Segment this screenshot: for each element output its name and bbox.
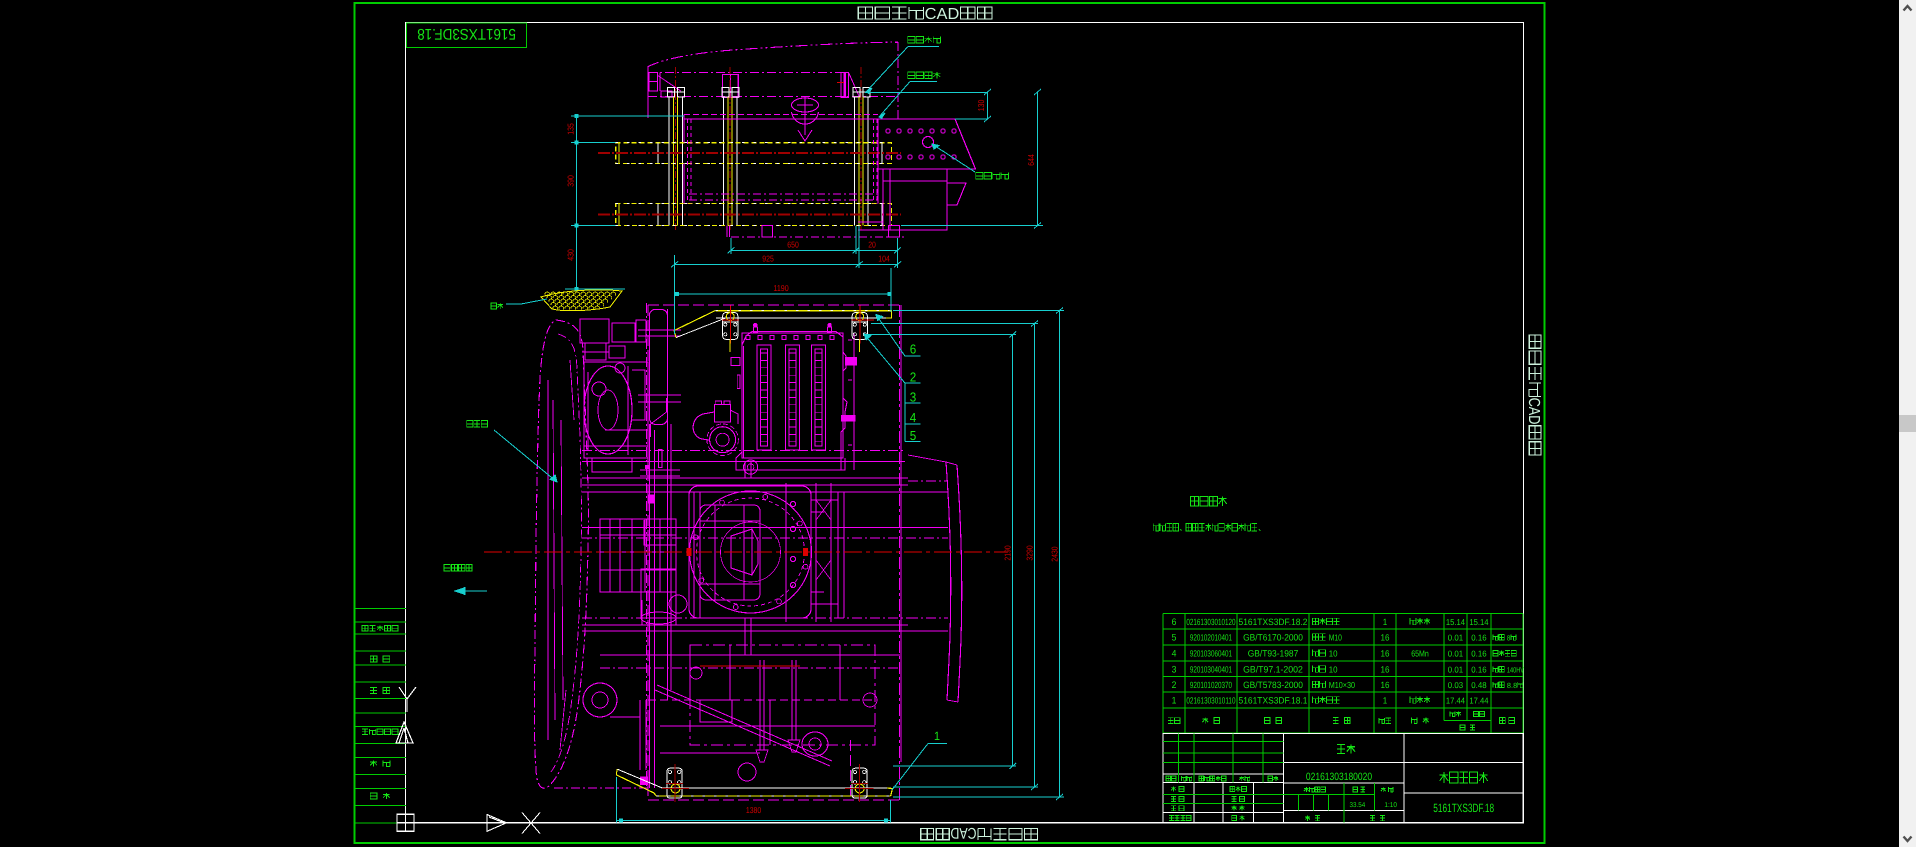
svg-text:650: 650 bbox=[787, 240, 799, 250]
svg-text:6: 6 bbox=[910, 342, 917, 357]
svg-text:GB/T6170-2000: GB/T6170-2000 bbox=[1243, 632, 1303, 642]
svg-text:6: 6 bbox=[1172, 617, 1177, 628]
svg-text:104: 104 bbox=[878, 254, 890, 264]
svg-text:920103040401: 920103040401 bbox=[1190, 664, 1232, 674]
svg-text:CAD: CAD bbox=[951, 824, 977, 841]
svg-text:1: 1 bbox=[1172, 695, 1177, 706]
svg-text:0.48: 0.48 bbox=[1471, 680, 1487, 690]
svg-text:1:10: 1:10 bbox=[1384, 802, 1397, 809]
svg-text:4: 4 bbox=[1172, 648, 1177, 659]
svg-text:GB/T97.1-2002: GB/T97.1-2002 bbox=[1243, 664, 1303, 674]
svg-text:0.03: 0.03 bbox=[1448, 680, 1464, 690]
svg-text:0.16: 0.16 bbox=[1471, 664, 1487, 674]
svg-text:1190: 1190 bbox=[773, 283, 789, 293]
svg-text:GB/T5783-2000: GB/T5783-2000 bbox=[1243, 680, 1303, 690]
svg-text:920101020370: 920101020370 bbox=[1190, 680, 1232, 690]
svg-text:16: 16 bbox=[1381, 680, 1390, 690]
svg-text:10: 10 bbox=[1329, 648, 1338, 658]
svg-text:5161TXS3DF.18: 5161TXS3DF.18 bbox=[417, 25, 516, 42]
svg-text:135: 135 bbox=[566, 123, 576, 135]
svg-text:5161TXS3DF.18.2: 5161TXS3DF.18.2 bbox=[1239, 617, 1308, 627]
svg-text:1: 1 bbox=[1383, 695, 1388, 705]
svg-text:1: 1 bbox=[1383, 617, 1388, 627]
svg-text:M10×30: M10×30 bbox=[1329, 680, 1355, 690]
svg-text:8.8: 8.8 bbox=[1507, 681, 1517, 690]
svg-text:15.14: 15.14 bbox=[1446, 617, 1465, 627]
svg-text:430: 430 bbox=[566, 249, 576, 261]
svg-text:5: 5 bbox=[910, 428, 917, 443]
svg-text:2430: 2430 bbox=[1050, 546, 1060, 562]
svg-text:390: 390 bbox=[566, 175, 576, 187]
svg-text:0.16: 0.16 bbox=[1471, 648, 1487, 658]
svg-text:130: 130 bbox=[976, 99, 986, 111]
svg-text:4: 4 bbox=[910, 410, 917, 425]
svg-text:10: 10 bbox=[1329, 664, 1338, 674]
svg-text:8: 8 bbox=[1507, 633, 1510, 642]
svg-text:GB/T93-1987: GB/T93-1987 bbox=[1248, 648, 1299, 658]
svg-text:5161TXS3DF.18: 5161TXS3DF.18 bbox=[1433, 801, 1494, 815]
svg-text:65Mn: 65Mn bbox=[1411, 648, 1429, 658]
svg-text:2: 2 bbox=[910, 370, 917, 385]
svg-text:1: 1 bbox=[934, 729, 940, 743]
svg-text:3: 3 bbox=[1172, 664, 1177, 675]
svg-text:920103060401: 920103060401 bbox=[1190, 648, 1232, 658]
svg-text:CAD: CAD bbox=[925, 6, 960, 23]
svg-text:0.01: 0.01 bbox=[1448, 664, 1464, 674]
svg-text:0.01: 0.01 bbox=[1448, 632, 1464, 642]
svg-text:02161303010120: 02161303010120 bbox=[1186, 617, 1235, 627]
svg-text:644: 644 bbox=[1026, 154, 1036, 166]
svg-text:17.44: 17.44 bbox=[1446, 695, 1465, 705]
svg-text:925: 925 bbox=[762, 254, 774, 264]
svg-text:17.44: 17.44 bbox=[1469, 695, 1488, 705]
svg-text:3: 3 bbox=[910, 390, 917, 405]
svg-text:0.16: 0.16 bbox=[1471, 632, 1487, 642]
svg-text:5161TXS3DF.18.1: 5161TXS3DF.18.1 bbox=[1239, 695, 1308, 705]
svg-text:0.01: 0.01 bbox=[1448, 648, 1464, 658]
svg-text:920102010401: 920102010401 bbox=[1190, 632, 1232, 642]
svg-text:M10: M10 bbox=[1329, 632, 1342, 642]
svg-text:2: 2 bbox=[1172, 680, 1177, 691]
svg-text:1380: 1380 bbox=[746, 805, 762, 815]
svg-text:16: 16 bbox=[1381, 664, 1390, 674]
svg-text:2190: 2190 bbox=[1003, 545, 1013, 561]
svg-text:16: 16 bbox=[1381, 648, 1390, 658]
svg-text:33.54: 33.54 bbox=[1350, 802, 1366, 809]
svg-text:02161303180020: 02161303180020 bbox=[1306, 771, 1372, 783]
svg-text:20: 20 bbox=[868, 240, 876, 250]
svg-text:5: 5 bbox=[1172, 632, 1177, 643]
svg-text:15.14: 15.14 bbox=[1469, 617, 1488, 627]
svg-text:CAD: CAD bbox=[1525, 398, 1542, 425]
svg-text:140HV: 140HV bbox=[1507, 665, 1525, 674]
svg-text:3290: 3290 bbox=[1025, 545, 1035, 561]
svg-text:16: 16 bbox=[1381, 632, 1390, 642]
svg-text:02161303010110: 02161303010110 bbox=[1186, 695, 1235, 705]
